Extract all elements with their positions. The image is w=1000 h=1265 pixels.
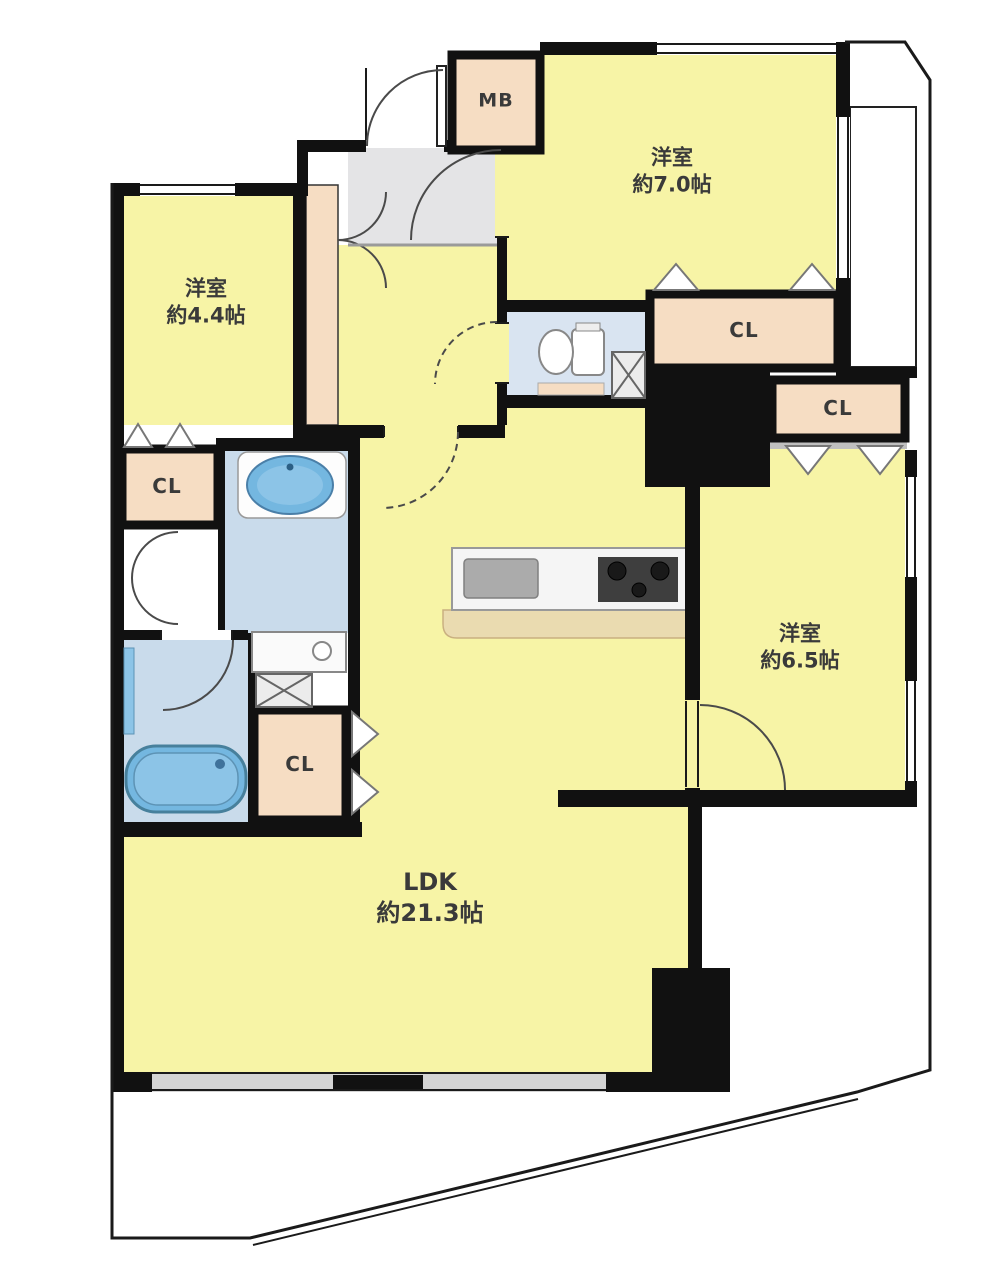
entrance-door-leaf	[437, 66, 446, 146]
hall-closet-strip	[306, 185, 338, 425]
bedroom-c-label: 洋室 約6.5帖	[760, 621, 839, 676]
window-ldk-bottom	[112, 1072, 658, 1092]
ldk-label: LDK 約21.3帖	[376, 867, 483, 929]
laundry-x-icon	[256, 674, 312, 707]
hallway-floor	[338, 245, 497, 438]
washing-machine-pan-icon	[252, 632, 346, 672]
bedroom-a-area: 約7.0帖	[632, 172, 711, 199]
bath-counter-icon	[124, 648, 134, 734]
bedroom-a-label: 洋室 約7.0帖	[632, 145, 711, 200]
closet-bedroom-a-label: CL	[729, 317, 758, 343]
bedroom-c-floor	[700, 449, 905, 790]
side-balcony	[850, 107, 916, 367]
washroom-vestibule-floor	[124, 525, 225, 630]
bedroom-b-area: 約4.4帖	[166, 303, 245, 330]
window-bedroom-c-right-upper	[905, 477, 917, 577]
bedroom-c-area: 約6.5帖	[760, 648, 839, 675]
stove-icon	[598, 557, 678, 602]
window-bedroom-c-right-lower	[905, 681, 917, 781]
ldk-name: LDK	[376, 867, 483, 898]
entrance-door-arc	[367, 70, 443, 146]
pipe-space-x-icon	[612, 352, 645, 398]
ldk-area: 約21.3帖	[376, 898, 483, 929]
window-bedroom-b-top	[140, 183, 235, 196]
pipe-shaft	[645, 365, 770, 487]
bedroom-b-label: 洋室 約4.4帖	[166, 276, 245, 331]
closet-bedroom-c-label: CL	[823, 395, 852, 421]
washbasin-icon	[238, 452, 346, 518]
window-bedroom-a-right	[836, 117, 850, 278]
bedroom-a-name: 洋室	[632, 145, 711, 172]
bedroom-b-name: 洋室	[166, 276, 245, 303]
floorplan-drawing	[0, 0, 1000, 1265]
kitchen-sink-icon	[464, 559, 538, 598]
window-bedroom-a-top	[657, 42, 836, 55]
closet-hall-label: CL	[152, 473, 181, 499]
bedroom-c-name: 洋室	[760, 621, 839, 648]
floorplan-image: 洋室 約7.0帖 洋室 約4.4帖 洋室 約6.5帖 LDK 約21.3帖 MB…	[0, 0, 1000, 1265]
meter-box-label: MB	[478, 89, 513, 114]
closet-washroom-label: CL	[285, 751, 314, 777]
bathtub-icon	[126, 746, 246, 812]
pillar	[652, 968, 730, 1092]
kitchen-counter	[443, 548, 688, 638]
kitchen-counter-base	[443, 610, 688, 638]
toilet-threshold	[538, 383, 604, 395]
